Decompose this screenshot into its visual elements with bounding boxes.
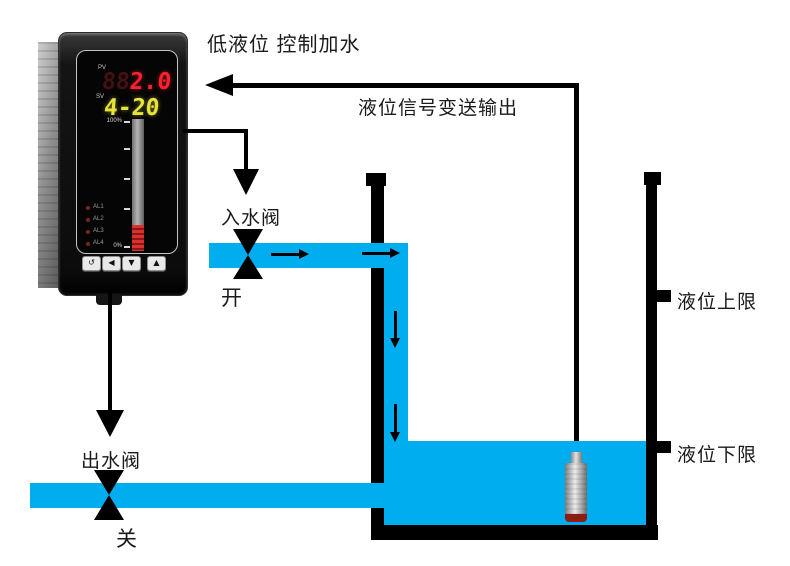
- bargraph-tick: [124, 178, 130, 180]
- flow-arrow-right-1-head-icon: [299, 249, 309, 259]
- level-control-diagram: PV 882.0 SV 4-20 100% 0% AL1 AL2 AL3 AL4…: [0, 0, 790, 566]
- outlet-pipe: [30, 483, 390, 508]
- bargraph-bottom-label: 0%: [102, 243, 122, 249]
- tank-right-wall: [646, 173, 657, 540]
- sv-label: SV: [96, 94, 104, 100]
- inlet-valve-label: 入水阀: [221, 203, 281, 230]
- lower-limit-tick: [657, 441, 671, 453]
- tank-bottom: [371, 525, 658, 540]
- pv-display: 882.0: [101, 70, 172, 94]
- level-sensor-tip: [565, 514, 587, 522]
- inlet-valve-icon: [233, 255, 263, 279]
- bargraph-top-label: 100%: [96, 118, 122, 124]
- lower-limit-label: 液位下限: [677, 440, 757, 467]
- pv-ghost-digits: 88: [101, 69, 131, 95]
- water-body: [384, 441, 646, 525]
- alarm-label: AL2: [93, 216, 104, 222]
- control-line-to-outlet-vertical: [108, 290, 112, 412]
- bargraph-bottom-tick: [124, 246, 130, 248]
- inlet-control-arrowhead-icon: [233, 169, 259, 195]
- alarm-label: AL1: [93, 204, 104, 210]
- signal-line-vertical-sensor-cable: [574, 83, 579, 455]
- bargraph-top-tick: [124, 121, 130, 123]
- control-line-to-inlet-horizontal: [183, 129, 247, 133]
- signal-line-horizontal: [230, 83, 578, 88]
- flow-arrow-right-1: [271, 253, 299, 256]
- flow-arrow-down-2-head-icon: [390, 432, 400, 442]
- inlet-valve-state: 开: [221, 282, 243, 312]
- bargraph-tick: [124, 148, 130, 150]
- level-sensor-body: [565, 463, 587, 516]
- upper-limit-tick: [657, 290, 671, 302]
- alarm-led: [86, 206, 90, 210]
- bargraph-tick: [124, 208, 130, 210]
- alarm-led: [86, 230, 90, 234]
- sv-display: 4-20: [103, 96, 160, 120]
- diagram-title: 低液位 控制加水: [207, 28, 361, 57]
- pv-value: 2.0: [129, 69, 173, 95]
- outlet-valve-icon: [94, 470, 124, 495]
- flow-arrow-down-1-head-icon: [390, 338, 400, 348]
- level-controller: PV 882.0 SV 4-20 100% 0% AL1 AL2 AL3 AL4…: [38, 32, 186, 312]
- alarm-label: AL3: [93, 228, 104, 234]
- outlet-control-arrowhead-icon: [96, 410, 124, 437]
- meter-up-key-icon: ▲: [147, 256, 166, 271]
- meter-left-key-icon: ◀: [102, 256, 121, 271]
- signal-arrowhead-icon: [205, 74, 233, 96]
- signal-label: 液位信号变送输出: [358, 93, 518, 120]
- bargraph-fill: [132, 225, 144, 251]
- alarm-led: [86, 218, 90, 222]
- meter-down-key-icon: ▼: [122, 256, 141, 271]
- meter-set-key-icon: ↺: [82, 256, 101, 271]
- outlet-valve-icon: [94, 495, 124, 520]
- flow-arrow-right-2: [362, 252, 390, 255]
- alarm-led: [86, 242, 90, 246]
- outlet-valve-state: 关: [116, 523, 138, 553]
- control-line-to-inlet-vertical: [244, 129, 248, 171]
- flow-arrow-down-1: [394, 311, 397, 338]
- upper-limit-label: 液位上限: [677, 287, 757, 314]
- flow-arrow-right-2-head-icon: [390, 248, 400, 258]
- outlet-valve-label: 出水阀: [81, 446, 141, 473]
- alarm-label: AL4: [93, 240, 104, 246]
- inlet-valve-icon: [233, 229, 263, 255]
- flow-arrow-down-2: [394, 404, 397, 432]
